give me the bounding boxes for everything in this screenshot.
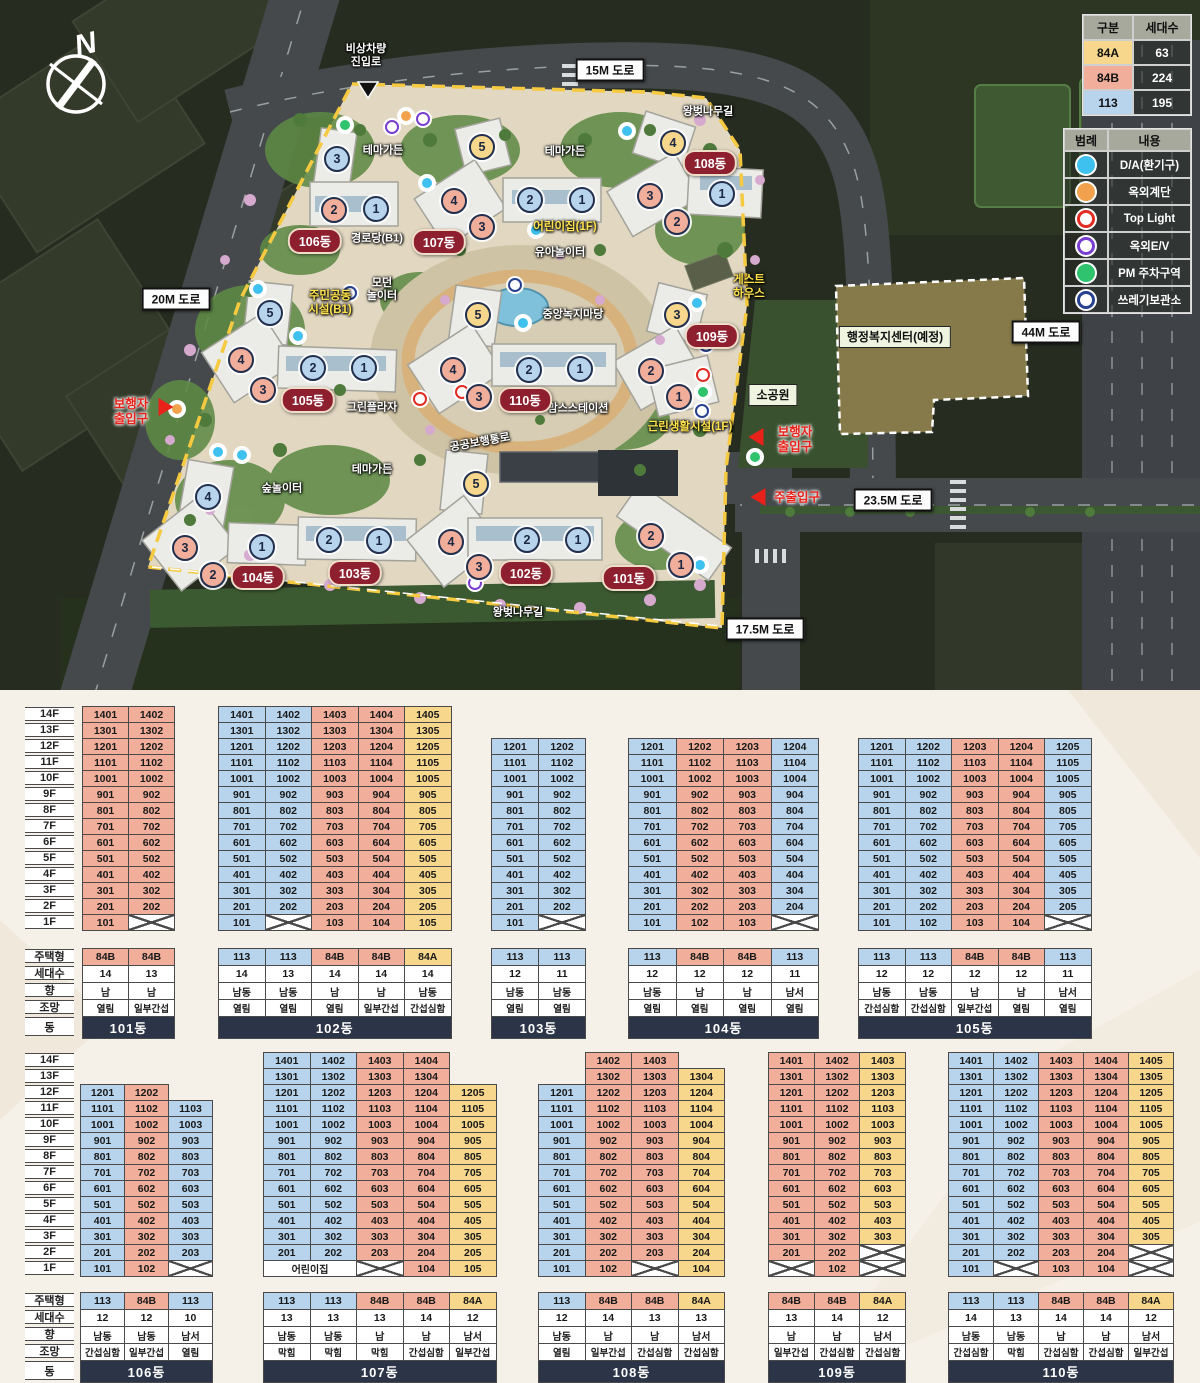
unit-cell: 303 [859,1228,906,1245]
unit-cell: 701 [82,818,129,835]
unit-cell: 802 [993,1148,1039,1165]
unit-cell: 1205 [449,1084,497,1101]
housing-type-cell: 84B [1038,1292,1084,1310]
housing-type-cell: 113 [628,948,677,966]
household-count-cell: 14 [585,1309,633,1327]
unit-cell: 905 [1044,786,1092,803]
floor-label: 2F [25,1245,74,1259]
unit-cell: 601 [263,1180,311,1197]
entrance-label: 보행자출입구 [778,425,813,455]
housing-type-cell: 84A [449,1292,497,1310]
household-count-cell: 14 [358,965,406,983]
unit-cell: 801 [491,802,539,819]
unit-cell: 1005 [449,1116,497,1133]
unit-cell: 104 [358,914,406,931]
unit-position-marker: 2 [514,527,540,553]
unit-cell: 1001 [948,1116,994,1133]
unit-cell: 802 [124,1148,169,1165]
unit-cell: 705 [404,818,452,835]
unit-cell: 1305 [1128,1068,1174,1085]
view-cell: 일부간섭 [768,1343,815,1361]
unit-cell: 203 [168,1244,213,1261]
unit-position-marker: 2 [200,562,226,588]
unit-cell: 402 [265,866,313,883]
unit-cell: 1004 [771,770,820,787]
unit-cell: 302 [128,882,175,899]
unit-cell: 901 [768,1132,815,1149]
unit-cell: 1002 [538,770,586,787]
unit-cell: 102 [124,1260,169,1277]
unit-cell: 501 [80,1196,125,1213]
floor-label: 8F [25,1149,74,1163]
unit-cell: 1003 [168,1116,213,1133]
da-dot-icon [235,448,249,462]
unit-position-marker: 4 [440,357,466,383]
unit-cell: 203 [356,1244,404,1261]
unit-position-marker: 3 [637,183,663,209]
legend-dot-icon [1077,264,1095,282]
unit-cell: 201 [218,898,266,915]
housing-type-cell: 84B [676,948,725,966]
da-dot-icon [690,296,704,310]
unit-cell: 705 [1128,1164,1174,1181]
view-cell: 일부간섭 [358,999,406,1017]
unit-cell: 504 [678,1196,726,1213]
unit-cell: 401 [538,1212,586,1229]
unit-cell: 204 [403,1244,451,1261]
unit-cell: 705 [1044,818,1092,835]
unit-cell: 903 [951,786,999,803]
household-count-cell: 14 [1038,1309,1084,1327]
unit-position-marker: 5 [469,134,495,160]
unit-type-cell: 113 [1083,90,1133,115]
view-cell: 일부간섭 [449,1343,497,1361]
direction-cell: 남동 [628,982,677,1000]
floor-label: 10F [25,1117,74,1131]
unit-cell: 801 [538,1148,586,1165]
unit-cell: 802 [814,1148,861,1165]
household-count-cell: 13 [263,1309,311,1327]
da-dot-icon [291,329,305,343]
unit-cell: 801 [80,1148,125,1165]
unit-cell: 1003 [723,770,772,787]
unit-cell: 805 [1128,1148,1174,1165]
unit-cell: 1202 [585,1084,633,1101]
unit-cell: 301 [491,882,539,899]
ev-dot-icon [385,120,399,134]
unit-position-marker: 5 [463,471,489,497]
unit-cell: 105 [404,914,452,931]
unit-cell: 302 [676,882,725,899]
unit-cell: 804 [358,802,406,819]
unit-cell: 901 [80,1132,125,1149]
unit-cell: 204 [998,898,1046,915]
legend-dot-cell [1064,151,1108,178]
site-label: 비상차량진입로 [346,43,386,69]
unit-cell: 303 [168,1228,213,1245]
unit-cell: 603 [723,834,772,851]
view-cell: 열림 [538,1343,586,1361]
facility-badge: 소공원 [748,384,797,406]
unit-cell: 1001 [263,1116,311,1133]
view-cell: 일부간섭 [124,1343,169,1361]
housing-type-cell: 113 [265,948,313,966]
unit-cell: 1303 [311,722,359,739]
unit-cell: 1003 [356,1116,404,1133]
unit-cell: 205 [404,898,452,915]
unit-cell: 501 [858,850,906,867]
unit-cell: 402 [538,866,586,883]
unit-cell: 604 [1083,1180,1129,1197]
household-count-cell: 12 [124,1309,169,1327]
unit-cell: 803 [859,1148,906,1165]
floor-label: 10F [25,771,74,785]
site-plan-artwork [0,0,1200,690]
unit-position-marker: 4 [438,529,464,555]
unit-cell: 902 [905,786,953,803]
unit-cell: 801 [858,802,906,819]
unit-cell: 1304 [678,1068,726,1085]
unit-cell: 701 [80,1164,125,1181]
unit-cell: 902 [265,786,313,803]
unit-cell: 301 [218,882,266,899]
unit-position-marker: 2 [664,209,690,235]
unit-cell: 304 [998,882,1046,899]
building-name-bar: 105동 [858,1016,1092,1039]
unit-cell: 602 [676,834,725,851]
unit-count-table: 구분세대수84A6384B224113195 [1082,14,1192,116]
unit-cell: 1001 [218,770,266,787]
site-label: 테마가든 [363,144,403,157]
unit-cell: 504 [358,850,406,867]
unit-cell: 805 [449,1148,497,1165]
unit-cell: 1303 [631,1068,679,1085]
unit-cell: 1201 [948,1084,994,1101]
unit-cell: 1401 [948,1052,994,1069]
unit-cell: 503 [723,850,772,867]
household-count-cell: 11 [1044,965,1092,983]
unit-cell: 401 [948,1212,994,1229]
unit-cell: 604 [998,834,1046,851]
floor-label: 7F [25,819,74,833]
no-unit-cell [356,1260,404,1277]
unit-cell: 504 [998,850,1046,867]
unit-cell: 1002 [676,770,725,787]
unit-cell: 1203 [356,1084,404,1101]
entrance-arrow-left-icon [749,428,764,446]
view-cell: 일부간섭 [1128,1343,1174,1361]
unit-cell: 804 [1083,1148,1129,1165]
direction-cell: 남 [82,982,129,1000]
unit-cell: 302 [124,1228,169,1245]
unit-cell: 1002 [265,770,313,787]
unit-position-marker: 1 [366,528,392,554]
unit-cell: 1203 [723,738,772,755]
view-cell: 열림 [1044,999,1092,1017]
unit-cell: 301 [82,882,129,899]
unit-position-marker: 3 [324,146,350,172]
unit-cell: 1302 [265,722,313,739]
unit-cell: 1002 [310,1116,358,1133]
site-label: 맘스스테이션 [548,402,609,415]
unit-cell: 504 [771,850,820,867]
unit-cell: 903 [311,786,359,803]
unit-cell: 904 [1083,1132,1129,1149]
unit-cell: 201 [858,898,906,915]
unit-cell: 304 [678,1228,726,1245]
unit-cell: 1004 [998,770,1046,787]
building-name-bar: 109동 [768,1360,906,1383]
floor-label: 3F [25,883,74,897]
unit-cell: 305 [404,882,452,899]
unit-cell: 1103 [1038,1100,1084,1117]
unit-position-marker: 4 [195,484,221,510]
unit-cell: 203 [951,898,999,915]
unit-cell: 401 [80,1212,125,1229]
unit-cell: 702 [905,818,953,835]
unit-cell: 904 [358,786,406,803]
view-cell: 열림 [491,999,539,1017]
unit-cell: 602 [265,834,313,851]
unit-cell: 701 [948,1164,994,1181]
unit-cell: 1102 [905,754,953,771]
unit-cell: 1405 [1128,1052,1174,1069]
legend-table: 범례내용D/A(환기구)옥외계단Top Light옥외E/VPM 주차구역쓰레기… [1063,128,1192,314]
unit-cell: 1101 [858,754,906,771]
unit-position-marker: 1 [363,196,389,222]
unit-cell: 1305 [404,722,452,739]
direction-cell: 남동 [993,1326,1039,1344]
unit-cell: 405 [404,866,452,883]
unit-cell: 501 [82,850,129,867]
footer-row-label: 주택형 [25,949,74,963]
unit-cell: 703 [951,818,999,835]
housing-type-cell: 84B [951,948,999,966]
unit-cell: 1101 [491,754,539,771]
site-label: 모던놀이터 [367,277,397,303]
unit-cell: 302 [993,1228,1039,1245]
road-label-badge: 15M 도로 [576,59,645,82]
unit-table-header: 구분 [1083,15,1133,40]
legend-dot-cell [1064,232,1108,259]
unit-cell: 603 [1038,1180,1084,1197]
household-count-cell: 12 [80,1309,125,1327]
unit-cell: 1204 [403,1084,451,1101]
unit-cell: 901 [628,786,677,803]
unit-cell: 703 [1038,1164,1084,1181]
unit-cell: 1403 [311,706,359,723]
view-cell: 열림 [538,999,586,1017]
road-label-badge: 20M 도로 [142,288,211,311]
view-cell: 열림 [82,999,129,1017]
unit-cell: 1002 [814,1116,861,1133]
unit-cell: 1004 [678,1116,726,1133]
floor-label: 1F [25,915,74,929]
unit-cell: 902 [814,1132,861,1149]
unit-cell: 703 [631,1164,679,1181]
unit-cell: 103 [311,914,359,931]
unit-cell: 401 [218,866,266,883]
unit-cell: 305 [449,1228,497,1245]
unit-position-marker: 1 [567,356,593,382]
footer-row-label: 동 [25,1017,74,1036]
unit-cell: 901 [858,786,906,803]
unit-cell: 501 [218,850,266,867]
unit-cell: 101 [538,1260,586,1277]
housing-type-cell: 84B [585,1292,633,1310]
unit-cell: 1202 [905,738,953,755]
unit-cell: 701 [858,818,906,835]
da-dot-icon [251,282,265,296]
unit-cell: 903 [723,786,772,803]
road-label-badge: 44M 도로 [1012,321,1081,344]
unit-cell: 403 [723,866,772,883]
unit-cell: 1001 [80,1116,125,1133]
compass-north-icon: N [38,28,124,120]
unit-cell: 1301 [82,722,129,739]
unit-cell: 1203 [311,738,359,755]
no-unit-cell [631,1260,679,1277]
floor-label: 2F [25,899,74,913]
housing-type-cell: 84B [403,1292,451,1310]
view-cell: 막힘 [993,1343,1039,1361]
unit-cell: 1002 [128,770,175,787]
unit-cell: 601 [218,834,266,851]
unit-cell: 704 [1083,1164,1129,1181]
building-name-bar: 102동 [218,1016,452,1039]
top-dot-icon [413,392,427,406]
household-count-cell: 13 [631,1309,679,1327]
unit-cell: 102 [814,1260,861,1277]
floor-label: 6F [25,835,74,849]
unit-cell: 101 [948,1260,994,1277]
da-dot-icon [516,316,530,330]
direction-cell: 남 [356,1326,404,1344]
unit-cell: 601 [628,834,677,851]
legend-dot-cell [1064,286,1108,313]
housing-type-cell: 113 [993,1292,1039,1310]
unit-cell: 801 [263,1148,311,1165]
pm-dot-icon [696,385,710,399]
view-cell: 간섭심함 [814,1343,861,1361]
unit-cell: 1002 [585,1116,633,1133]
view-cell: 열림 [218,999,266,1017]
view-cell: 간섭심함 [403,1343,451,1361]
unit-cell: 904 [403,1132,451,1149]
unit-cell: 503 [1038,1196,1084,1213]
unit-cell: 904 [678,1132,726,1149]
unit-cell: 904 [771,786,820,803]
unit-cell: 1002 [905,770,953,787]
unit-cell: 204 [1083,1244,1129,1261]
unit-cell: 901 [82,786,129,803]
unit-cell: 901 [218,786,266,803]
housing-type-cell: 84B [768,1292,815,1310]
unit-cell: 401 [768,1212,815,1229]
unit-cell: 1004 [403,1116,451,1133]
unit-cell: 505 [404,850,452,867]
housing-type-cell: 113 [771,948,820,966]
unit-cell: 1202 [676,738,725,755]
household-count-cell: 12 [449,1309,497,1327]
unit-cell: 405 [1128,1212,1174,1229]
unit-cell: 202 [124,1244,169,1261]
floor-label: 14F [25,1053,74,1067]
household-count-cell: 14 [404,965,452,983]
unit-cell: 803 [311,802,359,819]
unit-cell: 401 [263,1212,311,1229]
unit-cell: 1103 [951,754,999,771]
unit-cell: 604 [403,1180,451,1197]
building-number-badge: 106동 [288,228,342,254]
da-dot-icon [211,445,225,459]
unit-cell: 1001 [858,770,906,787]
unit-cell: 702 [128,818,175,835]
unit-cell: 1201 [858,738,906,755]
direction-cell: 남 [311,982,359,1000]
legend-label-cell: Top Light [1108,205,1191,232]
unit-cell: 104 [403,1260,451,1277]
unit-position-marker: 3 [172,535,198,561]
unit-cell: 505 [1044,850,1092,867]
view-cell: 열림 [998,999,1046,1017]
unit-cell: 1102 [585,1100,633,1117]
housing-type-cell: 84B [631,1292,679,1310]
unit-cell: 1201 [263,1084,311,1101]
unit-cell: 701 [491,818,539,835]
unit-cell: 502 [814,1196,861,1213]
floor-label: 12F [25,739,74,753]
household-count-cell: 14 [311,965,359,983]
unit-cell: 201 [768,1244,815,1261]
housing-type-cell: 84B [358,948,406,966]
view-cell: 막힘 [263,1343,311,1361]
no-unit-cell [859,1260,906,1277]
unit-cell: 1004 [358,770,406,787]
unit-cell: 502 [124,1196,169,1213]
unit-cell: 1204 [771,738,820,755]
stair-dot-icon [399,109,413,123]
unit-cell: 1003 [859,1116,906,1133]
unit-cell: 201 [628,898,677,915]
unit-cell: 804 [403,1148,451,1165]
unit-cell: 804 [998,802,1046,819]
view-cell: 간섭심함 [631,1343,679,1361]
direction-cell: 남 [951,982,999,1000]
direction-cell: 남동 [263,1326,311,1344]
view-cell: 간섭심함 [905,999,953,1017]
unit-position-marker: 1 [709,181,735,207]
unit-cell: 304 [403,1228,451,1245]
household-count-cell: 13 [128,965,175,983]
unit-cell: 101 [82,914,129,931]
pm-dot-icon [748,450,762,464]
unit-cell: 302 [905,882,953,899]
unit-cell: 903 [859,1132,906,1149]
unit-cell: 1104 [358,754,406,771]
unit-cell: 301 [80,1228,125,1245]
unit-cell: 1404 [358,706,406,723]
entrance-label: 보행자출입구 [114,397,149,427]
unit-cell: 105 [449,1260,497,1277]
unit-cell: 103 [723,914,772,931]
unit-cell: 602 [128,834,175,851]
unit-cell: 101 [628,914,677,931]
unit-cell: 1101 [82,754,129,771]
unit-cell: 202 [905,898,953,915]
unit-cell: 902 [993,1132,1039,1149]
building-number-badge: 108동 [683,150,737,176]
